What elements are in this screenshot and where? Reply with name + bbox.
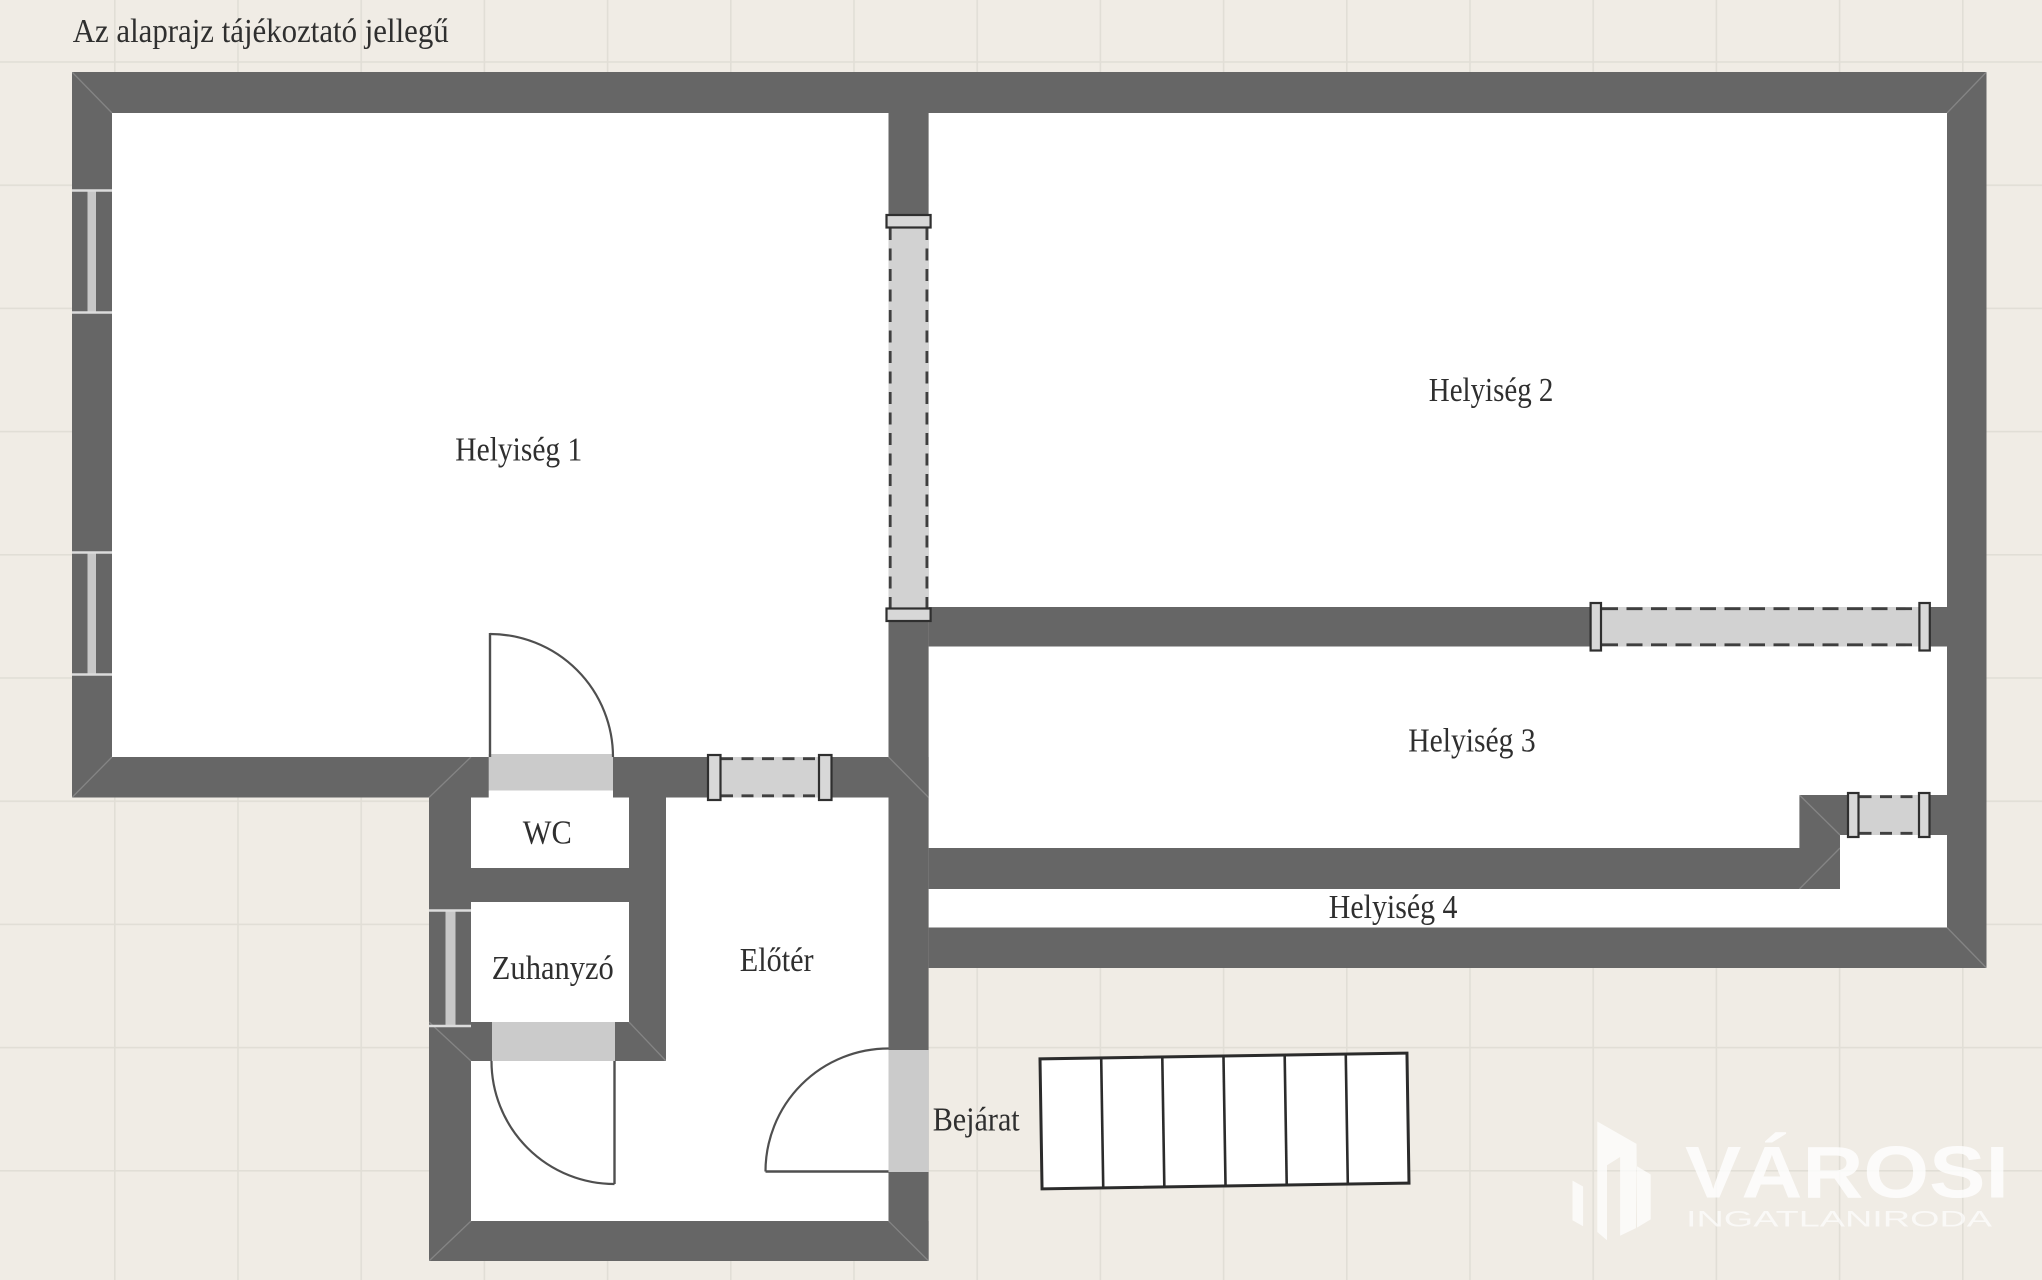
svg-text:Előtér: Előtér: [740, 942, 814, 979]
svg-text:Helyiség 3: Helyiség 3: [1408, 723, 1536, 760]
svg-text:INGATLANIRODA: INGATLANIRODA: [1686, 1206, 1993, 1231]
svg-text:Helyiség 2: Helyiség 2: [1429, 372, 1554, 409]
svg-text:Helyiség 1: Helyiség 1: [455, 432, 582, 469]
svg-text:Bejárat: Bejárat: [933, 1102, 1020, 1139]
svg-text:Helyiség 4: Helyiség 4: [1329, 889, 1458, 926]
svg-text:WC: WC: [523, 815, 572, 852]
svg-text:Zuhanyzó: Zuhanyzó: [492, 950, 614, 987]
svg-text:Az alaprajz tájékoztató jelleg: Az alaprajz tájékoztató jellegű: [73, 13, 449, 50]
svg-text:VÁROSI: VÁROSI: [1685, 1132, 2009, 1213]
